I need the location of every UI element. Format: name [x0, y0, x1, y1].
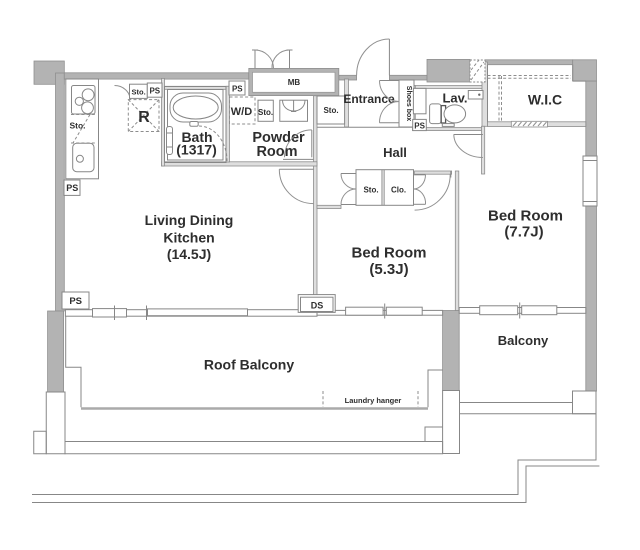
svg-text:Bed Room: Bed Room	[352, 245, 427, 262]
svg-text:(7.7J): (7.7J)	[504, 224, 543, 241]
svg-text:W.I.C: W.I.C	[528, 92, 562, 108]
svg-text:Roof Balcony: Roof Balcony	[204, 357, 294, 373]
svg-text:PS: PS	[69, 296, 82, 307]
svg-text:DS: DS	[311, 301, 324, 311]
svg-text:Sto.: Sto.	[323, 106, 338, 115]
svg-text:(14.5J): (14.5J)	[167, 246, 211, 262]
svg-text:PS: PS	[149, 86, 160, 95]
svg-text:Bed Room: Bed Room	[488, 208, 563, 225]
svg-text:Sto.: Sto.	[132, 87, 146, 96]
svg-text:R: R	[138, 109, 150, 126]
svg-text:PS: PS	[414, 121, 425, 130]
svg-text:Laundry hanger: Laundry hanger	[345, 396, 402, 405]
svg-text:Balcony: Balcony	[498, 333, 549, 348]
svg-text:Sto.: Sto.	[69, 121, 85, 131]
svg-text:Room: Room	[256, 144, 297, 160]
svg-text:Sto.: Sto.	[258, 108, 273, 117]
svg-text:Entrance: Entrance	[343, 92, 395, 106]
svg-text:Living Dining: Living Dining	[145, 212, 234, 228]
svg-text:Hall: Hall	[383, 145, 407, 160]
svg-text:W/D: W/D	[231, 106, 252, 118]
svg-text:Kitchen: Kitchen	[163, 230, 214, 246]
svg-text:MB: MB	[288, 78, 301, 87]
svg-text:Shoes box: Shoes box	[405, 86, 412, 122]
svg-text:PS: PS	[232, 85, 243, 94]
svg-text:Lav.: Lav.	[442, 91, 467, 106]
svg-text:Sto.: Sto.	[363, 185, 378, 194]
svg-text:(5.3J): (5.3J)	[369, 261, 408, 278]
svg-text:Clo.: Clo.	[391, 185, 406, 194]
svg-text:PS: PS	[66, 183, 78, 193]
svg-text:(1317): (1317)	[176, 142, 216, 158]
